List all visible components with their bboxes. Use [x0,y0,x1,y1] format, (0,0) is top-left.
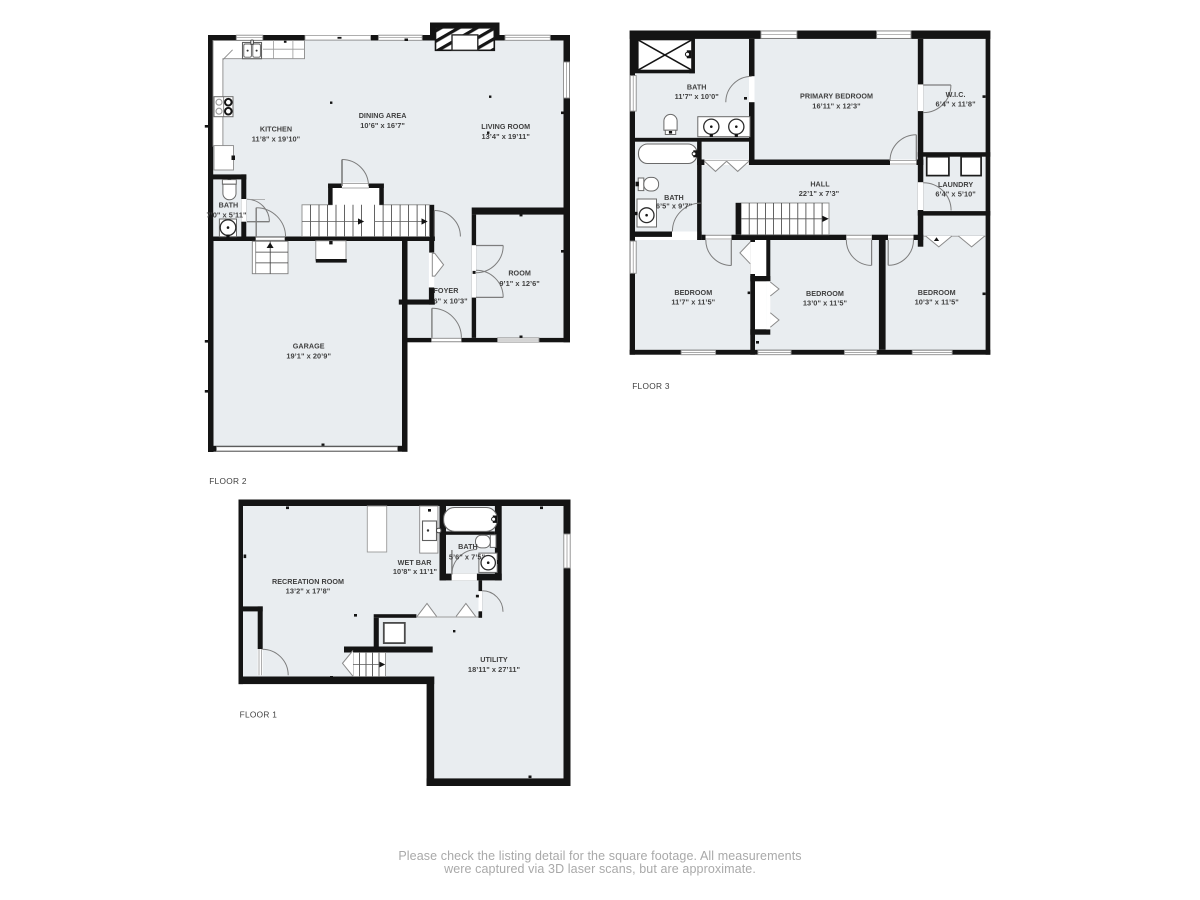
svg-text:6" x 10’3": 6" x 10’3" [434,296,469,305]
svg-text:GARAGE: GARAGE [293,341,325,350]
svg-text:LIVING ROOM: LIVING ROOM [481,122,530,131]
svg-text:BEDROOM: BEDROOM [806,289,844,298]
svg-text:BEDROOM: BEDROOM [918,288,956,297]
svg-text:11’7" x 10’0": 11’7" x 10’0" [675,92,720,101]
svg-text:6’5" x 9’7": 6’5" x 9’7" [656,202,693,211]
svg-text:6’4" x 11’8": 6’4" x 11’8" [936,100,977,109]
svg-text:BATH: BATH [458,542,478,551]
svg-text:DINING AREA: DINING AREA [359,111,407,120]
svg-text:FLOOR 2: FLOOR 2 [209,476,247,486]
svg-text:FOYER: FOYER [433,286,459,295]
svg-text:W.I.C.: W.I.C. [946,90,966,99]
svg-text:FLOOR 1: FLOOR 1 [240,709,278,719]
svg-text:18’11" x 27’11": 18’11" x 27’11" [468,665,521,674]
svg-text:10’6" x 16’7": 10’6" x 16’7" [360,121,405,130]
svg-text:11’7" x 11’5": 11’7" x 11’5" [671,298,715,307]
svg-text:BATH: BATH [219,201,239,210]
svg-text:9’1" x 12’6": 9’1" x 12’6" [499,279,540,288]
svg-text:6’4" x 5’10": 6’4" x 5’10" [935,189,976,198]
svg-text:13’0" x 11’5": 13’0" x 11’5" [803,298,848,307]
svg-text:WET BAR: WET BAR [398,558,433,567]
svg-text:19’1" x 20’9": 19’1" x 20’9" [286,352,331,361]
svg-text:BATH: BATH [687,82,707,91]
svg-text:BATH: BATH [664,193,684,202]
svg-text:13’2" x 17’8": 13’2" x 17’8" [286,587,331,596]
svg-text:22’1" x 7’3": 22’1" x 7’3" [799,189,840,198]
svg-text:10’3" x 11’5": 10’3" x 11’5" [915,298,960,307]
svg-text:7’0" x 5’11": 7’0" x 5’11" [206,211,247,220]
svg-text:16’11" x 12’3": 16’11" x 12’3" [812,101,861,110]
svg-text:HALL: HALL [810,179,830,188]
svg-text:BEDROOM: BEDROOM [674,288,712,297]
svg-text:RECREATION ROOM: RECREATION ROOM [272,577,344,586]
svg-text:13’4" x 19’11": 13’4" x 19’11" [481,132,530,141]
svg-text:LAUNDRY: LAUNDRY [938,180,973,189]
svg-text:KITCHEN: KITCHEN [260,124,292,133]
svg-text:10’8" x 11’1": 10’8" x 11’1" [393,567,438,576]
svg-text:11’8" x 19’10": 11’8" x 19’10" [252,134,301,143]
svg-text:ROOM: ROOM [508,268,531,277]
svg-text:Please check the listing detai: Please check the listing detail for the … [398,849,801,863]
svg-text:5’6" x 7’5": 5’6" x 7’5" [449,552,486,561]
svg-text:PRIMARY BEDROOM: PRIMARY BEDROOM [800,92,873,101]
svg-text:UTILITY: UTILITY [480,655,508,664]
svg-text:were captured via 3D laser sca: were captured via 3D laser scans, but ar… [443,862,756,876]
svg-text:FLOOR 3: FLOOR 3 [632,381,670,391]
